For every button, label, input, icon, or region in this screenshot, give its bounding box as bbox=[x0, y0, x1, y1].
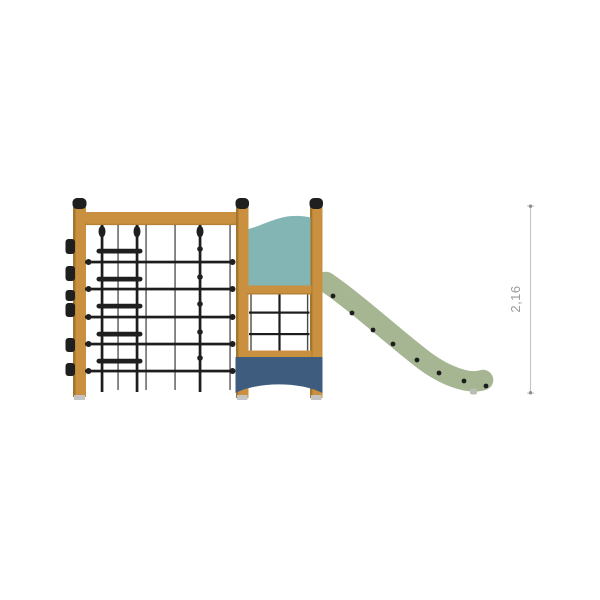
grid-rope-horizontal bbox=[249, 312, 310, 314]
horizontal-rope bbox=[85, 316, 235, 319]
rope-connector-icon bbox=[134, 226, 141, 238]
slide-foot bbox=[470, 389, 477, 395]
ladder-rung bbox=[97, 304, 143, 309]
rope-knot-dot bbox=[230, 314, 236, 320]
playground-drawing: 2,16 bbox=[0, 0, 600, 600]
horizontal-rope bbox=[85, 261, 235, 264]
rope-connector-icon bbox=[99, 226, 106, 238]
tower-rail-upper-shade bbox=[247, 293, 312, 295]
upper-panel-teal bbox=[249, 216, 311, 288]
ladder-rung bbox=[97, 359, 143, 364]
vertical-rope-thin bbox=[174, 225, 175, 390]
rope-knot-dot bbox=[230, 341, 236, 347]
play-tower bbox=[236, 198, 324, 400]
rope-knot-dot bbox=[197, 274, 203, 280]
ladder-rung bbox=[97, 277, 143, 282]
top-beam bbox=[85, 212, 236, 225]
rope-knot-dot bbox=[197, 329, 203, 335]
vertical-rope-thin bbox=[145, 225, 146, 390]
lower-panel-navy bbox=[236, 357, 323, 393]
grid-rope-vertical bbox=[250, 295, 251, 352]
rope-knot-dot bbox=[86, 286, 92, 292]
grid-rope-horizontal bbox=[249, 333, 310, 335]
slide-rivet-dot bbox=[415, 358, 420, 363]
dimension-annotation: 2,16 bbox=[508, 205, 534, 395]
horizontal-rope bbox=[85, 370, 235, 373]
slide-rivet-dot bbox=[462, 379, 467, 384]
dimension-endpoint-dot bbox=[529, 391, 532, 394]
rope-knot-dot bbox=[86, 341, 92, 347]
post-cap-icon bbox=[73, 198, 87, 209]
top-beam-shade bbox=[85, 224, 236, 226]
slide-rivet-dot bbox=[350, 311, 355, 316]
horizontal-rope bbox=[85, 288, 235, 291]
climbing-hold-icon bbox=[66, 303, 76, 317]
climbing-net-section bbox=[66, 198, 237, 400]
slide-rivet-dot bbox=[437, 371, 442, 376]
tower-left-post-foot bbox=[237, 395, 248, 400]
rope-knot-dot bbox=[230, 368, 236, 374]
climbing-hold-icon bbox=[66, 239, 76, 254]
ladder-rung bbox=[97, 332, 143, 337]
tower-right-post-foot bbox=[311, 395, 322, 400]
rope-knot-dot bbox=[230, 286, 236, 292]
rope-knot-dot bbox=[86, 259, 92, 265]
post-cap-icon bbox=[310, 198, 324, 209]
slide-surface bbox=[326, 282, 483, 381]
grid-rope-vertical bbox=[278, 295, 280, 352]
dimension-endpoint-dot bbox=[529, 205, 532, 208]
rope-knot-dot bbox=[197, 246, 203, 252]
climbing-hold-icon bbox=[66, 290, 76, 301]
slide-rivet-dot bbox=[391, 342, 396, 347]
horizontal-rope bbox=[85, 343, 235, 346]
rope-knot-dot bbox=[230, 259, 236, 265]
rope-knot-dot bbox=[86, 368, 92, 374]
post-cap-icon bbox=[236, 198, 250, 209]
ladder-rung bbox=[97, 249, 143, 254]
grid-rope-vertical bbox=[307, 295, 308, 352]
dimension-line bbox=[530, 206, 531, 393]
dimension-label: 2,16 bbox=[508, 285, 523, 312]
vertical-rope-thin bbox=[229, 225, 230, 390]
rope-knot-dot bbox=[197, 301, 203, 307]
slide-rivet-dot bbox=[331, 294, 336, 299]
rope-connector-icon bbox=[197, 226, 204, 238]
rope-knot-dot bbox=[197, 355, 203, 361]
slide-rivet-dot bbox=[484, 384, 489, 389]
net-left-post-foot bbox=[74, 395, 85, 400]
slide bbox=[326, 282, 488, 395]
climbing-hold-icon bbox=[66, 266, 76, 281]
climbing-hold-icon bbox=[66, 338, 76, 352]
slide-rivet-dot bbox=[371, 328, 376, 333]
rope-knot-dot bbox=[86, 314, 92, 320]
drawing-canvas: 2,16 bbox=[0, 0, 600, 600]
climbing-hold-icon bbox=[66, 363, 76, 376]
